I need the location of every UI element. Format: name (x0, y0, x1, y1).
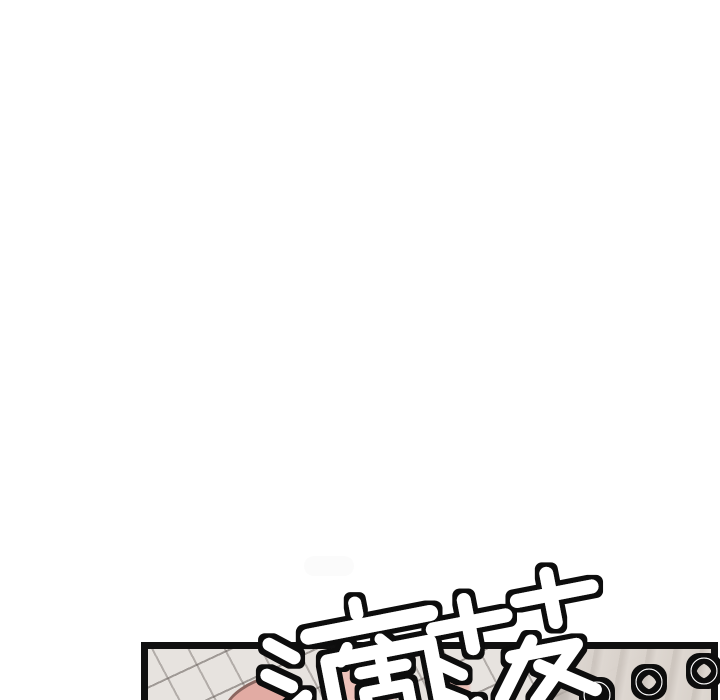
sfx-char-luo (421, 566, 612, 700)
sfx-dot (691, 658, 717, 684)
sfx-dot (636, 669, 662, 695)
sfx-lettering (0, 0, 720, 700)
sfx-char-di (257, 589, 449, 700)
webtoon-page: 滴落... (0, 0, 720, 700)
